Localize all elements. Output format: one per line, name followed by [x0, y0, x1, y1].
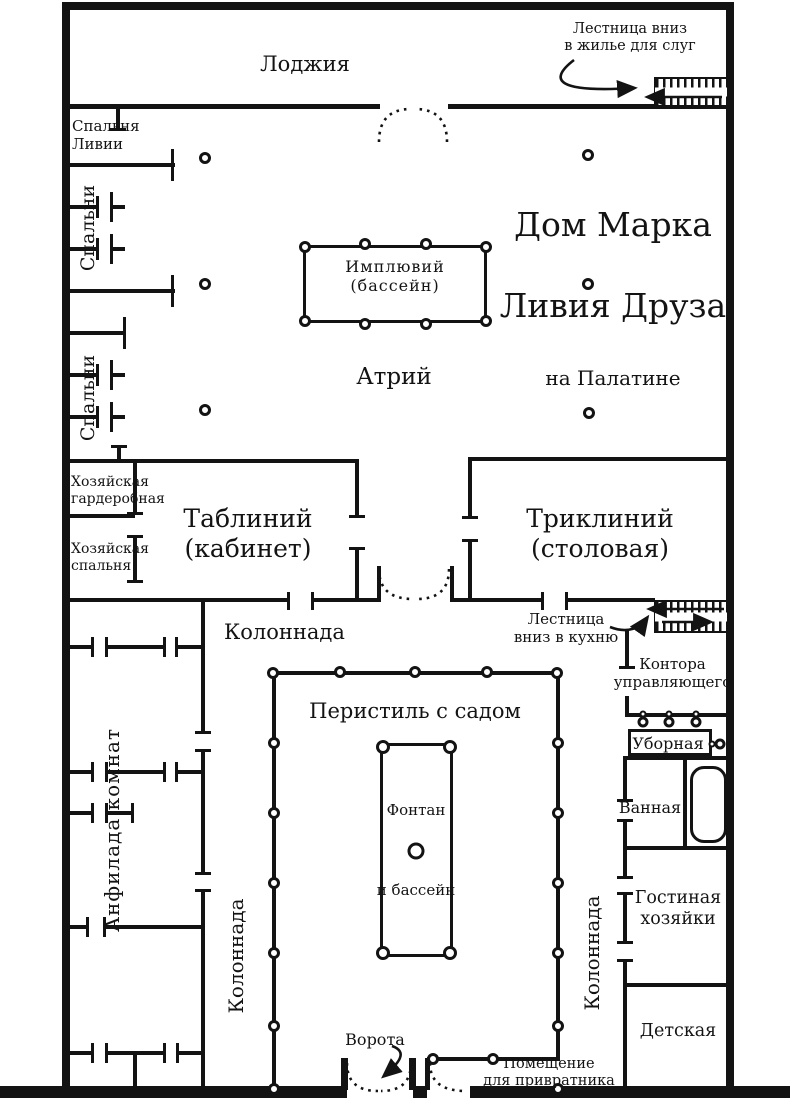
door-jamb: [195, 749, 211, 752]
room-label-colonnade-left: Колоннада: [224, 898, 248, 1013]
column-icon: [268, 877, 280, 889]
column-icon: [409, 666, 421, 678]
wall-segment: [110, 247, 125, 251]
column-icon: [376, 946, 390, 960]
wall-segment: [468, 457, 472, 518]
door-jamb: [195, 731, 211, 734]
gate-post: [409, 1058, 416, 1090]
door-jamb: [123, 317, 126, 349]
door-jamb: [163, 1043, 166, 1063]
wall-segment: [65, 1051, 93, 1055]
wall-segment: [623, 756, 627, 801]
wall-segment: [451, 598, 543, 602]
door-jamb: [617, 876, 633, 879]
column-icon: [199, 152, 211, 164]
column-icon: [552, 877, 564, 889]
column-icon: [267, 667, 279, 679]
wall-segment: [355, 459, 359, 517]
plan-title-line1: Дом Марка: [468, 205, 758, 245]
stairs-to-kitchen: [654, 600, 728, 633]
door-jamb: [541, 592, 544, 610]
room-label-colonnade-top: Колоннада: [224, 620, 344, 645]
door-jamb: [127, 580, 143, 583]
wall-segment: [623, 846, 627, 878]
wall-segment: [313, 598, 380, 602]
door-jamb: [617, 941, 633, 944]
wall-segment: [110, 205, 125, 209]
column-icon: [334, 666, 346, 678]
wall-segment: [178, 1051, 203, 1055]
door-jamb: [111, 445, 127, 448]
door-jamb: [91, 762, 94, 782]
wall-segment: [65, 645, 93, 649]
room-label-colonnade-right: Колоннада: [580, 895, 604, 1010]
room-label-atrium: Атрий: [344, 364, 444, 391]
roman-house-floor-plan: Лоджия Лестница вниз в жилье для слуг Сп…: [0, 0, 790, 1102]
toilet-seat-icon: [715, 739, 726, 750]
room-label-bedrooms-1: Спальни: [77, 185, 99, 271]
toilet-seat-icon: [638, 717, 649, 728]
wall-segment: [177, 645, 203, 649]
wall-segment: [65, 811, 93, 815]
wall-segment: [65, 514, 135, 518]
wall-segment: [625, 756, 730, 760]
toilet-seat-icon: [664, 717, 675, 728]
door-jamb: [462, 539, 478, 542]
column-icon: [268, 807, 280, 819]
room-label-tablinum: Таблиний (кабинет): [158, 504, 338, 563]
column-icon: [299, 315, 311, 327]
room-label-impluvium: Имплювий (бассейн): [325, 258, 465, 296]
door-jamb: [462, 516, 478, 519]
room-label-bathroom: Ванная: [611, 799, 689, 818]
plan-title-line2: Ливия Друза: [468, 286, 758, 326]
room-label-nursery: Детская: [616, 1021, 740, 1042]
wall-segment: [201, 600, 205, 734]
column-icon: [199, 404, 211, 416]
wall-segment: [133, 1053, 137, 1098]
label-stairs-kitchen: Лестница вниз в кухню: [490, 611, 642, 646]
plan-title: Дом Марка Ливия Друза на Палатине: [468, 165, 758, 431]
column-icon: [552, 737, 564, 749]
column-icon: [268, 947, 280, 959]
gate-post: [341, 1058, 348, 1090]
room-label-bedrooms-2: Спальни: [77, 355, 99, 441]
wall-segment: [65, 459, 359, 463]
door-jamb: [287, 592, 290, 610]
wall-segment: [65, 289, 175, 293]
column-icon: [552, 1020, 564, 1032]
label-gate: Ворота: [325, 1031, 425, 1050]
door-jamb: [377, 566, 381, 602]
column-icon: [427, 1053, 439, 1065]
wall-segment: [201, 891, 205, 1087]
column-icon: [420, 238, 432, 250]
column-icon: [268, 1020, 280, 1032]
bathtub-icon: [690, 766, 727, 843]
label-fountain-top: Фонтан: [375, 802, 457, 820]
wall-segment: [65, 331, 125, 335]
room-label-loggia: Лоджия: [255, 52, 355, 77]
wall-segment: [567, 598, 655, 602]
wall-segment: [0, 1086, 347, 1098]
door-jamb: [617, 819, 633, 822]
door-jamb: [131, 803, 134, 823]
column-icon: [582, 149, 594, 161]
room-label-office: Контора управляющего: [605, 656, 740, 691]
room-label-master-bedroom: Хозяйская спальня: [71, 541, 171, 574]
wall-segment: [623, 983, 730, 987]
wall-segment: [65, 163, 175, 167]
wall-segment: [468, 541, 472, 602]
door-jamb: [349, 547, 365, 550]
room-label-peristyle: Перистиль с садом: [305, 699, 525, 724]
label-porter-room: Помещение для привратника: [475, 1056, 623, 1090]
door-jamb: [127, 535, 143, 538]
wall-segment: [468, 457, 726, 461]
wall-segment: [65, 770, 93, 774]
room-label-lavatory: Уборная: [627, 735, 709, 754]
door-jamb: [91, 1043, 94, 1063]
wall-segment: [62, 2, 734, 10]
door-jamb: [450, 566, 454, 602]
column-icon: [359, 238, 371, 250]
column-icon: [199, 278, 211, 290]
wall-segment: [65, 104, 380, 109]
column-icon: [552, 807, 564, 819]
wall-segment: [177, 770, 203, 774]
wall-segment: [110, 373, 125, 377]
fountain-icon: [408, 843, 425, 860]
column-icon: [443, 946, 457, 960]
label-stairs-servants: Лестница вниз в жилье для слуг: [550, 21, 710, 55]
column-icon: [443, 740, 457, 754]
column-icon: [552, 947, 564, 959]
toilet-seat-icon: [691, 717, 702, 728]
column-icon: [420, 318, 432, 330]
wall-segment: [110, 415, 125, 419]
wall-segment: [65, 925, 88, 929]
column-icon: [481, 666, 493, 678]
door-jamb: [195, 889, 211, 892]
wall-segment: [107, 645, 165, 649]
door-jamb: [163, 637, 166, 657]
door-jamb: [86, 917, 89, 937]
wall-segment: [623, 846, 730, 850]
door-jamb: [171, 275, 174, 307]
door-jamb: [349, 515, 365, 518]
column-icon: [551, 667, 563, 679]
stairs-to-servants-quarters: [654, 77, 728, 107]
column-icon: [299, 241, 311, 253]
wall-segment: [556, 671, 560, 1061]
column-icon: [268, 737, 280, 749]
room-label-livia-bedroom: Спальня Ливии: [72, 118, 142, 153]
room-label-sitting-room: Гостиная хозяйки: [616, 888, 740, 929]
door-jamb: [171, 149, 174, 181]
column-icon: [359, 318, 371, 330]
room-label-enfilade: Анфилада комнат: [100, 728, 124, 932]
door-jamb: [91, 637, 94, 657]
column-icon: [376, 740, 390, 754]
plan-title-line3: на Палатине: [468, 366, 758, 390]
wall-segment: [623, 821, 627, 848]
door-jamb: [91, 803, 94, 823]
wall-segment: [65, 598, 289, 602]
column-icon: [268, 1083, 280, 1095]
room-label-wardrobe: Хозяйская гардеробная: [71, 474, 171, 507]
room-label-triclinium: Триклиний (столовая): [510, 504, 690, 563]
door-jamb: [195, 872, 211, 875]
door-jamb: [163, 762, 166, 782]
wall-segment: [355, 549, 359, 602]
label-fountain-bottom: и бассейн: [373, 882, 459, 900]
